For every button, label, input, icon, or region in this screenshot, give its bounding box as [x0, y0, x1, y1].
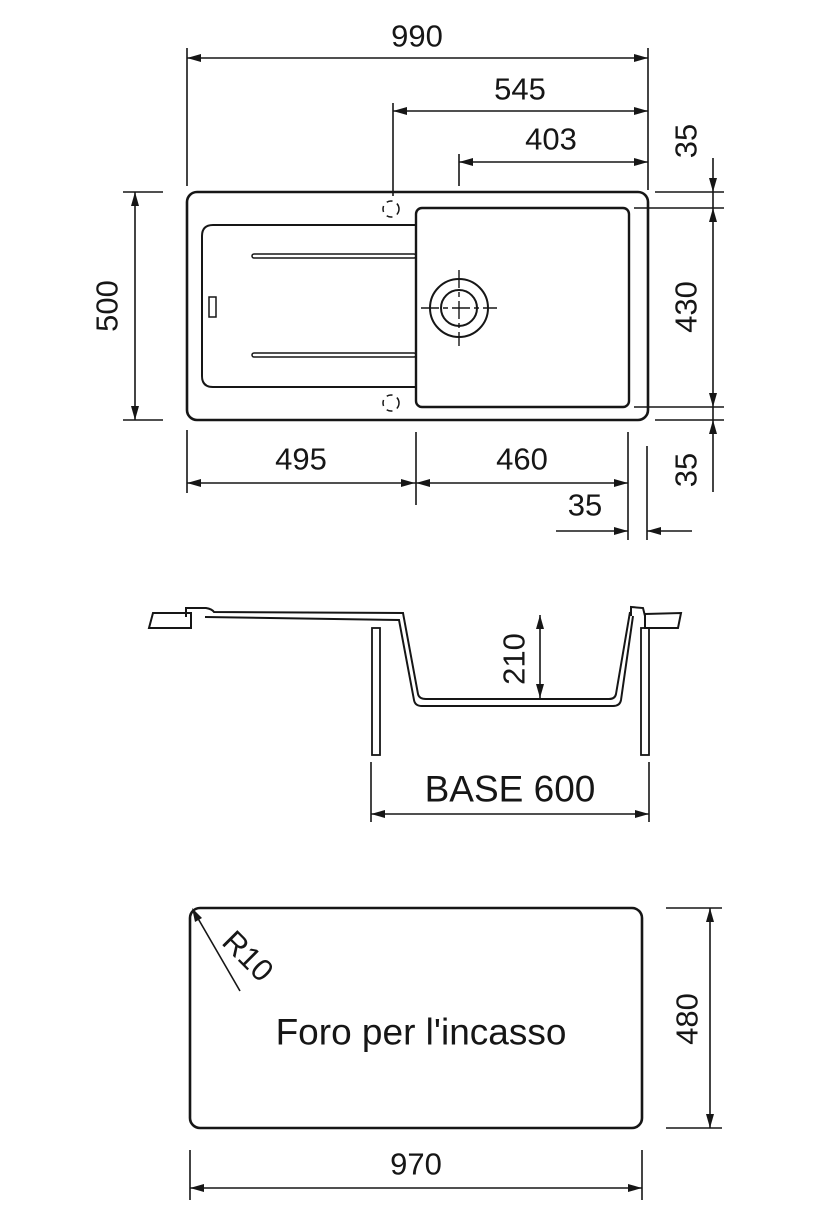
dim-label-500: 500: [92, 280, 123, 332]
dimension-500: [123, 192, 163, 420]
dim-label-990: 990: [391, 21, 443, 52]
countertop-right: [645, 613, 681, 628]
dim-label-35-bottom-right: 35: [671, 453, 702, 487]
drainer-groove-top: [252, 254, 416, 258]
cabinet-side-left: [372, 628, 380, 755]
dim-label-480: 480: [672, 993, 703, 1045]
top-view: [187, 192, 648, 420]
dim-label-970: 970: [390, 1149, 442, 1180]
sink-profile-outer: [205, 616, 633, 706]
dimension-545: [393, 103, 648, 196]
dimension-990: [187, 48, 648, 190]
drainboard-outline: [202, 225, 416, 387]
dim-label-35-bottom: 35: [568, 490, 602, 521]
technical-drawing-page: 990 545 403 35 500 430 495 460 35 35 210…: [0, 0, 813, 1220]
dim-label-403: 403: [525, 124, 577, 155]
rim-right: [631, 607, 645, 616]
dim-label-460: 460: [496, 444, 548, 475]
tap-hole-top: [383, 201, 399, 217]
drainer-groove-bottom: [252, 353, 416, 357]
dim-label-430: 430: [671, 281, 702, 333]
overflow-slot: [209, 297, 216, 317]
cutout-view: [190, 908, 722, 1200]
dim-label-base-600: BASE 600: [425, 771, 596, 808]
cutout-caption: Foro per l'incasso: [276, 1014, 567, 1051]
top-view-dimensions: [123, 48, 724, 540]
dim-label-545: 545: [494, 74, 546, 105]
dimension-403: [459, 154, 648, 186]
dim-label-210: 210: [499, 633, 530, 685]
sink-profile-inner: [186, 608, 630, 699]
dimension-210: [536, 615, 544, 698]
dim-label-495: 495: [275, 444, 327, 475]
section-view: [149, 607, 681, 822]
cabinet-side-right: [641, 628, 649, 755]
tap-hole-bottom: [383, 395, 399, 411]
dimension-495-460: [187, 430, 628, 540]
dim-label-35-top-right: 35: [671, 124, 702, 158]
sink-outline: [187, 192, 648, 420]
countertop-left: [149, 613, 191, 628]
